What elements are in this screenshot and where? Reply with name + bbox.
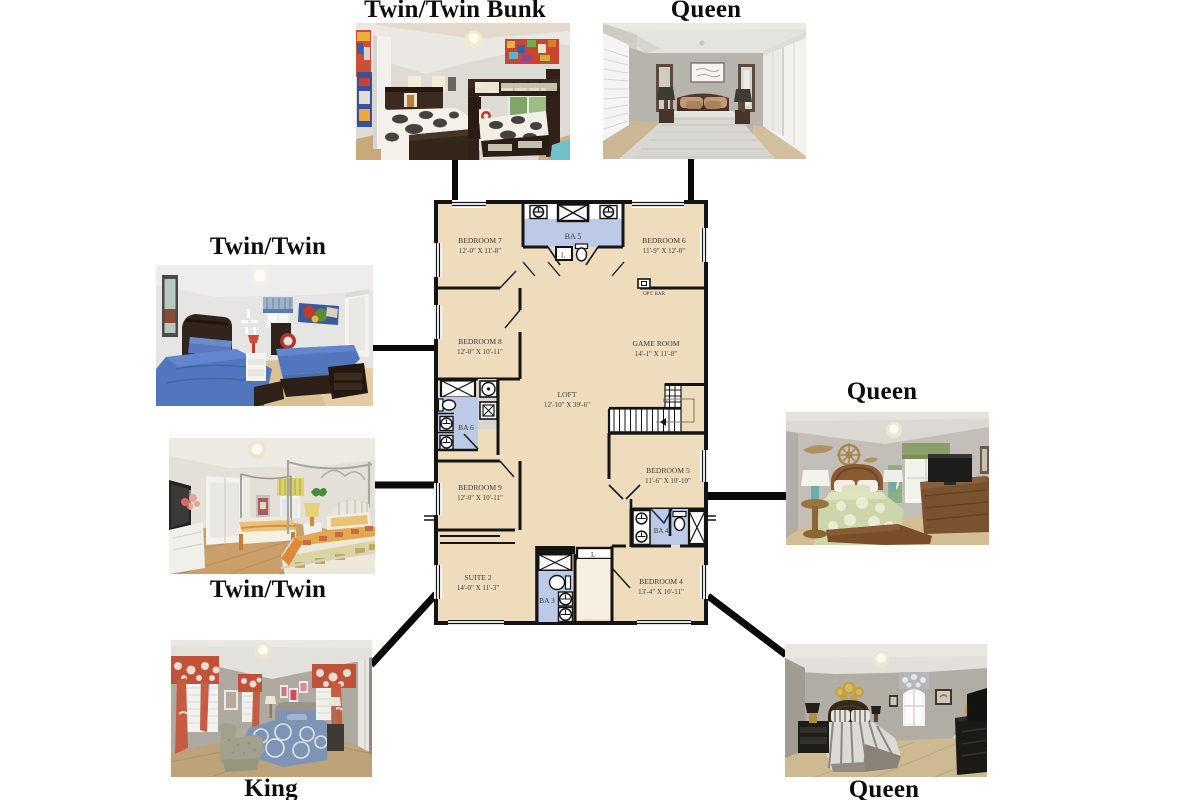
- svg-text:BEDROOM 4: BEDROOM 4: [639, 577, 683, 586]
- svg-text:BA 4: BA 4: [654, 527, 669, 535]
- svg-text:11'-6" X 10'-10": 11'-6" X 10'-10": [645, 477, 691, 485]
- svg-text:12'-10" X 39'-6": 12'-10" X 39'-6": [544, 401, 590, 409]
- svg-text:14'-0" X 11'-3": 14'-0" X 11'-3": [457, 584, 499, 592]
- svg-text:11'-9" X 12'-0": 11'-9" X 12'-0": [643, 247, 685, 255]
- svg-text:12'-0" X 10'-11": 12'-0" X 10'-11": [457, 494, 503, 502]
- svg-text:12'-0" X 10'-11": 12'-0" X 10'-11": [457, 348, 503, 356]
- svg-text:14'-1" X 11'-8": 14'-1" X 11'-8": [635, 350, 677, 358]
- svg-text:OPT. BAR: OPT. BAR: [643, 292, 666, 297]
- svg-text:L: L: [591, 551, 595, 559]
- svg-text:12'-0" X 11'-8": 12'-0" X 11'-8": [459, 247, 501, 255]
- svg-text:SUITE 2: SUITE 2: [464, 573, 491, 582]
- svg-text:BEDROOM 7: BEDROOM 7: [458, 236, 502, 245]
- svg-text:GAME ROOM: GAME ROOM: [632, 339, 679, 348]
- svg-text:LOFT: LOFT: [558, 390, 577, 399]
- svg-text:BA 6: BA 6: [458, 423, 474, 432]
- svg-text:BEDROOM 5: BEDROOM 5: [646, 466, 690, 475]
- svg-text:BEDROOM 8: BEDROOM 8: [458, 337, 502, 346]
- svg-text:BA 3: BA 3: [539, 596, 555, 605]
- svg-text:BEDROOM 9: BEDROOM 9: [458, 483, 502, 492]
- svg-text:BA 5: BA 5: [565, 232, 582, 241]
- svg-text:13'-4" X 10'-11": 13'-4" X 10'-11": [638, 588, 684, 596]
- svg-text:L: L: [561, 252, 565, 260]
- svg-text:BEDROOM 6: BEDROOM 6: [642, 236, 686, 245]
